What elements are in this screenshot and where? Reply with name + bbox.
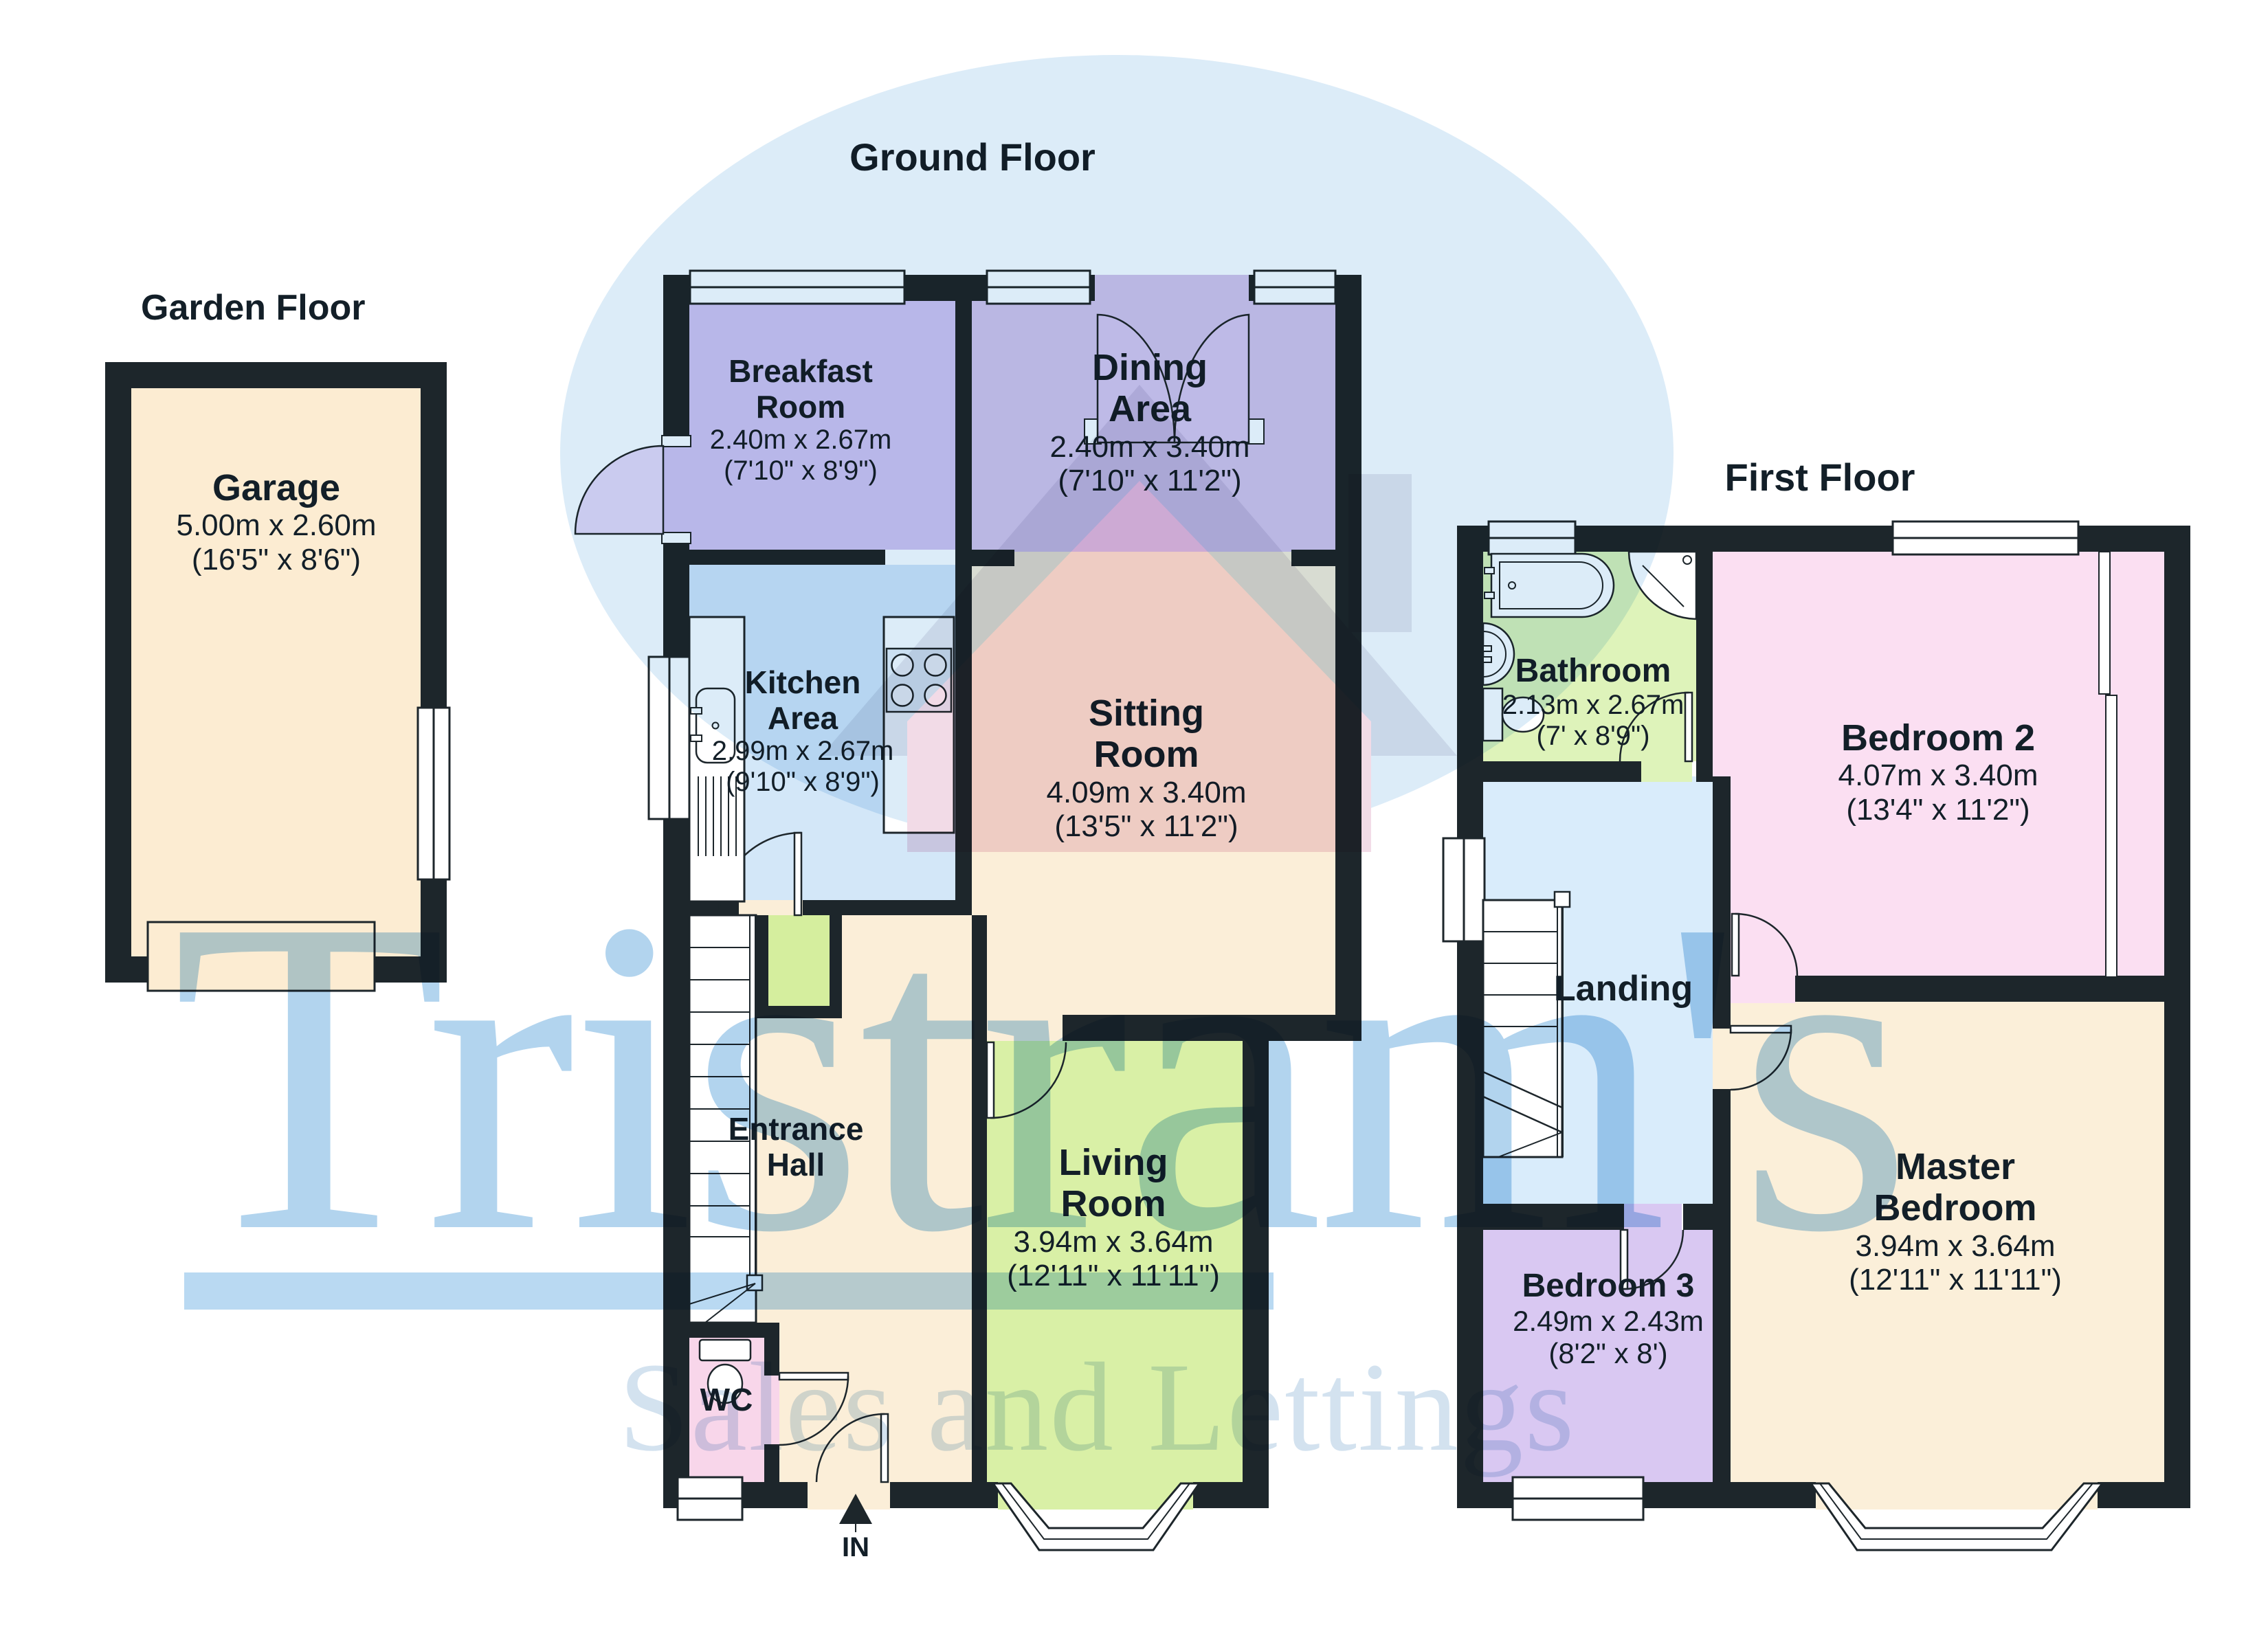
watermark-brand: Tristram's <box>172 851 1907 1301</box>
watermark-tagline: Sales and Lettings <box>619 1344 1575 1471</box>
watermark-underline <box>184 1272 1274 1310</box>
floorplan-canvas: Garden Floor Ground Floor First Floor Ga… <box>0 0 2268 1649</box>
logo-house-chimney <box>1348 474 1412 632</box>
